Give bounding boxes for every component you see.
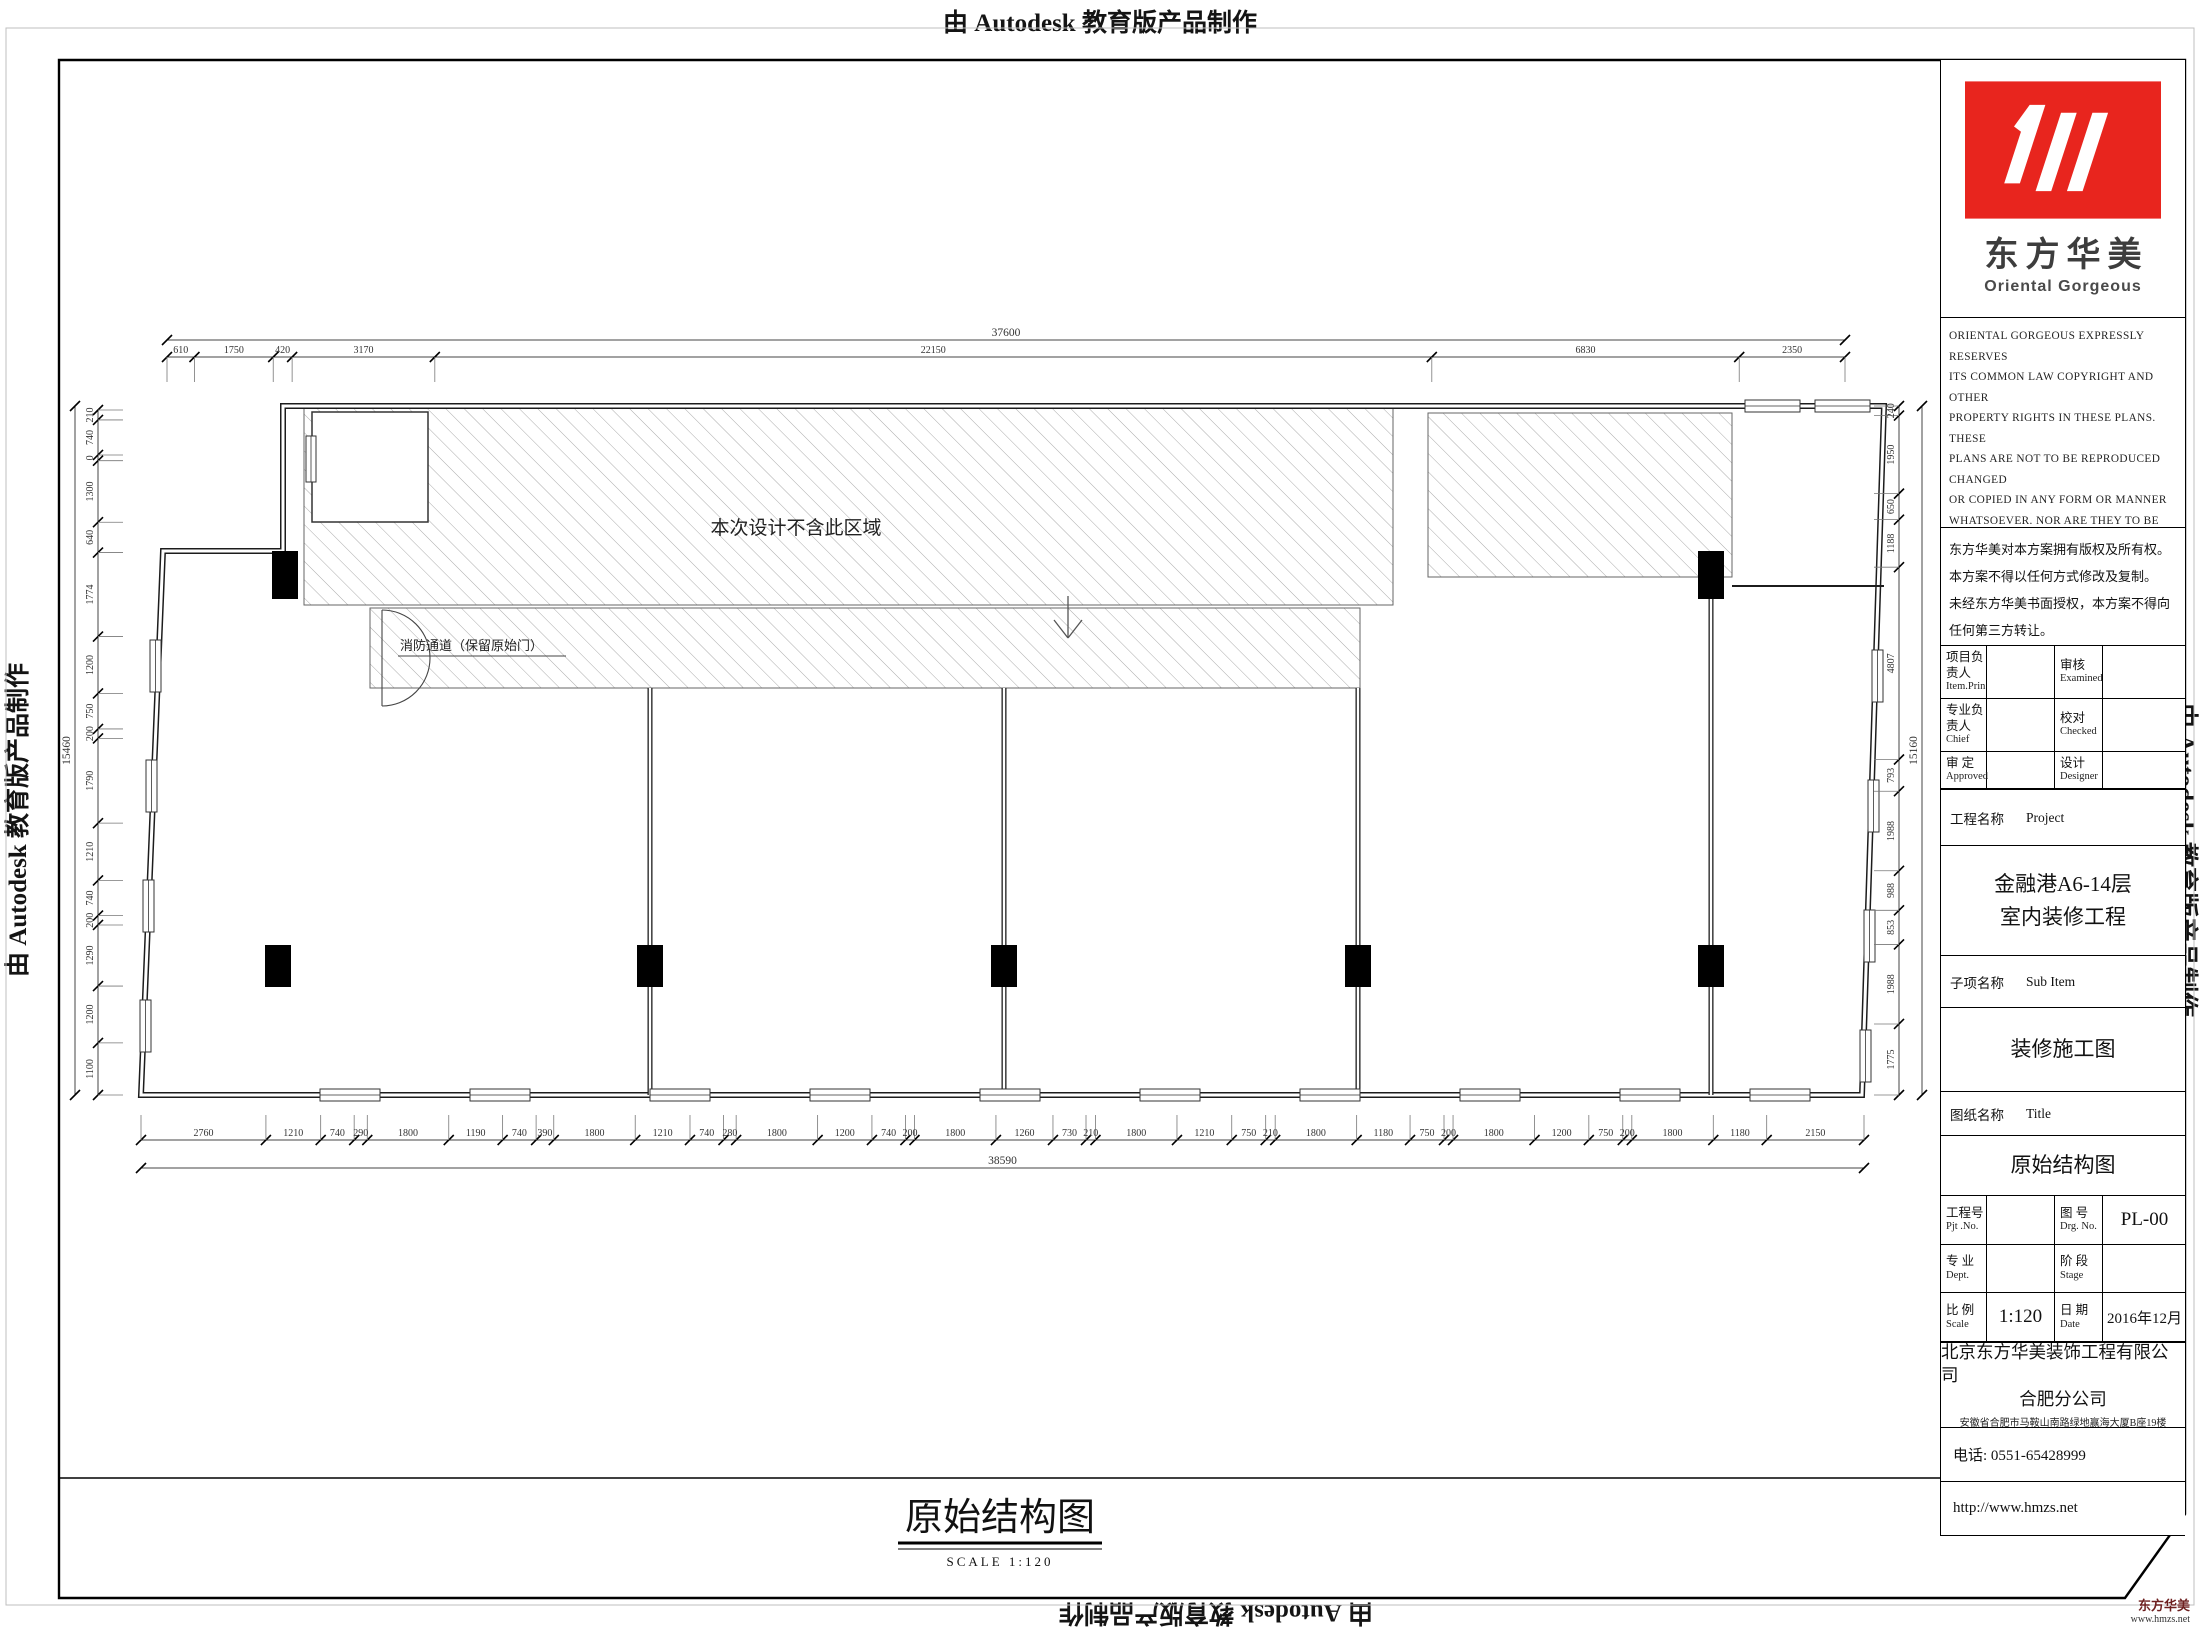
svg-text:1800: 1800 — [1306, 1128, 1326, 1139]
svg-text:1790: 1790 — [85, 771, 96, 791]
sheet-edge — [6, 28, 2194, 1605]
table-label-cell: 校对Checked — [2055, 699, 2103, 752]
table-label-cell: 专 业Dept. — [1941, 1245, 1987, 1294]
svg-text:1100: 1100 — [85, 1059, 96, 1079]
subitem-label-cn: 子项名称 — [1950, 972, 2004, 992]
svg-text:6830: 6830 — [1576, 345, 1596, 356]
svg-text:1800: 1800 — [398, 1128, 418, 1139]
svg-text:420: 420 — [275, 345, 290, 356]
table-label-cell: 审核Examined — [2055, 646, 2103, 699]
fire-exit-label: 消防通道（保留原始门） — [400, 638, 543, 653]
copyright-cn-line: 本方案不得以任何方式修改及复制。 — [1949, 563, 2181, 590]
logo-block: 东方华美 Oriental Gorgeous — [1941, 60, 2185, 318]
table-value-cell — [2103, 699, 2185, 752]
svg-text:200: 200 — [1620, 1128, 1635, 1139]
svg-text:740: 740 — [512, 1128, 527, 1139]
label-en: Examined — [2060, 673, 2100, 686]
svg-text:1210: 1210 — [85, 842, 96, 862]
label-cn: 审 定 — [1946, 756, 1984, 772]
sheet-value: 原始结构图 — [1941, 1136, 2185, 1196]
subitem-label-en: Sub Item — [2026, 974, 2075, 990]
copyright-cn-line: 未经东方华美书面授权，本方案不得向 — [1949, 590, 2181, 617]
svg-text:1190: 1190 — [466, 1128, 486, 1139]
label-cn: 工程号 — [1946, 1206, 1984, 1222]
table-value-cell — [1987, 699, 2055, 752]
copyright-en-line: WHATSOEVER. NOR ARE THEY TO BE ASSIGHED — [1949, 511, 2181, 529]
svg-text:3170: 3170 — [353, 345, 373, 356]
svg-text:0: 0 — [85, 455, 96, 460]
svg-text:750: 750 — [85, 704, 96, 719]
svg-text:200: 200 — [85, 913, 96, 928]
svg-text:290: 290 — [353, 1128, 368, 1139]
svg-text:1188: 1188 — [1886, 534, 1897, 554]
table-label-cell: 阶 段Stage — [2055, 1245, 2103, 1294]
svg-text:200: 200 — [1441, 1128, 1456, 1139]
label-en: Checked — [2060, 726, 2100, 739]
label-cn: 图 号 — [2060, 1206, 2100, 1222]
copyright-english: ORIENTAL GORGEOUS EXPRESSLY RESERVESITS … — [1941, 318, 2185, 528]
svg-text:1800: 1800 — [945, 1128, 965, 1139]
svg-text:1800: 1800 — [584, 1128, 604, 1139]
svg-text:1300: 1300 — [85, 481, 96, 501]
table-label-cell: 审 定Approved — [1941, 752, 1987, 789]
sheet-label-en: Title — [2026, 1106, 2051, 1122]
svg-text:2150: 2150 — [1805, 1128, 1825, 1139]
label-en: Pjt .No. — [1946, 1221, 1984, 1234]
copyright-en-line: PLANS ARE NOT TO BE REPRODUCED CHANGED — [1949, 449, 2181, 490]
svg-text:730: 730 — [1062, 1128, 1077, 1139]
label-cn: 项目负责人 — [1946, 650, 1984, 681]
svg-text:22150: 22150 — [921, 345, 946, 356]
svg-text:1950: 1950 — [1886, 445, 1897, 465]
table-label-cell: 日 期Date — [2055, 1293, 2103, 1342]
website-row: http://www.hmzs.net — [1941, 1482, 2185, 1536]
svg-text:1988: 1988 — [1886, 821, 1897, 841]
svg-text:1290: 1290 — [85, 946, 96, 966]
svg-text:1210: 1210 — [1194, 1128, 1214, 1139]
copyright-en-line: OR COPIED IN ANY FORM OR MANNER — [1949, 490, 2181, 511]
label-en: Approved — [1946, 771, 1984, 784]
room-cutout — [312, 412, 428, 522]
company-branch: 合肥分公司 — [2019, 1388, 2107, 1412]
footer-url: www.hmzs.net — [2085, 1614, 2190, 1626]
label-cn: 阶 段 — [2060, 1254, 2100, 1270]
project-name-line: 金融港A6-14层 — [1994, 868, 2132, 901]
svg-text:1988: 1988 — [1886, 974, 1897, 994]
table-label-cell: 项目负责人Item.Prin — [1941, 646, 1987, 699]
subitem-label-row: 子项名称 Sub Item — [1941, 956, 2185, 1008]
sheet-label-cn: 图纸名称 — [1950, 1104, 2004, 1124]
table-label-cell: 工程号Pjt .No. — [1941, 1196, 1987, 1245]
table-value-cell — [2103, 1245, 2185, 1294]
project-label-cn: 工程名称 — [1950, 808, 2004, 828]
sheet-value-text: 原始结构图 — [2011, 1149, 2116, 1182]
drawing-border — [59, 60, 2185, 1598]
copyright-cn-line: 任何第三方转让。 — [1949, 617, 2181, 644]
table-value-cell — [1987, 1196, 2055, 1245]
svg-text:200: 200 — [902, 1128, 917, 1139]
subitem-value: 装修施工图 — [1941, 1008, 2185, 1092]
project-name-line: 室内装修工程 — [2000, 901, 2126, 934]
table-value-cell — [1987, 752, 2055, 789]
table-label-cell: 设计Designer — [2055, 752, 2103, 789]
svg-text:15460: 15460 — [61, 736, 73, 765]
oriental-gorgeous-logo-mark — [1965, 81, 2161, 219]
table-value-cell — [1987, 646, 2055, 699]
label-en: Scale — [1946, 1319, 1984, 1332]
label-en: Date — [2060, 1319, 2100, 1332]
svg-text:1210: 1210 — [653, 1128, 673, 1139]
svg-text:1180: 1180 — [1730, 1128, 1750, 1139]
label-en: Stage — [2060, 1270, 2100, 1283]
svg-text:988: 988 — [1886, 883, 1897, 898]
project-label-en: Project — [2026, 810, 2064, 826]
table-label-cell: 专业负责人Chief — [1941, 699, 1987, 752]
floor-plan-canvas: 本次设计不含此区域 消防通道（保留原始门） 376006101750420317… — [0, 0, 2200, 1632]
drawing-sheet: 由 Autodesk 教育版产品制作 由 Autodesk 教育版产品制作 由 … — [0, 0, 2200, 1632]
title-block: 东方华美 Oriental Gorgeous ORIENTAL GORGEOUS… — [1940, 60, 2185, 1536]
svg-text:750: 750 — [1598, 1128, 1613, 1139]
table-value-cell: 1:120 — [1987, 1293, 2055, 1342]
svg-text:610: 610 — [173, 345, 188, 356]
label-cn: 专 业 — [1946, 1254, 1984, 1270]
label-cn: 审核 — [2060, 658, 2100, 674]
svg-text:750: 750 — [1241, 1128, 1256, 1139]
label-en: Designer — [2060, 771, 2100, 784]
copyright-cn-line: 东方华美对本方案拥有版权及所有权。 — [1949, 536, 2181, 563]
svg-text:1774: 1774 — [85, 585, 96, 605]
svg-text:750: 750 — [1420, 1128, 1435, 1139]
copyright-chinese: 东方华美对本方案拥有版权及所有权。本方案不得以任何方式修改及复制。未经东方华美书… — [1941, 528, 2185, 646]
svg-text:390: 390 — [537, 1128, 552, 1139]
table-value-cell: 2016年12月 — [2103, 1293, 2185, 1342]
svg-text:4807: 4807 — [1886, 653, 1897, 673]
meta-table: 工程号Pjt .No.图 号Drg. No.PL-00专 业Dept.阶 段St… — [1941, 1196, 2185, 1343]
logo-cn-text: 东方华美 — [1985, 227, 2149, 276]
svg-text:1200: 1200 — [835, 1128, 855, 1139]
svg-text:650: 650 — [1886, 499, 1897, 514]
svg-text:1800: 1800 — [767, 1128, 787, 1139]
label-en: Drg. No. — [2060, 1221, 2100, 1234]
svg-text:1775: 1775 — [1886, 1049, 1897, 1069]
svg-text:210: 210 — [1083, 1128, 1098, 1139]
label-cn: 专业负责人 — [1946, 703, 1984, 734]
svg-text:740: 740 — [881, 1128, 896, 1139]
svg-text:640: 640 — [85, 530, 96, 545]
phone-row: 电话: 0551-65428999 — [1941, 1428, 2185, 1482]
table-value-cell: PL-00 — [2103, 1196, 2185, 1245]
svg-text:740: 740 — [699, 1128, 714, 1139]
copyright-en-line: ORIENTAL GORGEOUS EXPRESSLY RESERVES — [1949, 326, 2181, 367]
table-value-cell — [1987, 1245, 2055, 1294]
label-cn: 比 例 — [1946, 1303, 1984, 1319]
svg-text:1800: 1800 — [1484, 1128, 1504, 1139]
table-label-cell: 比 例Scale — [1941, 1293, 1987, 1342]
project-label-row: 工程名称 Project — [1941, 790, 2185, 846]
company-block: 北京东方华美装饰工程有限公司 合肥分公司 安徽省合肥市马鞍山南路绿地赢海大厦B座… — [1941, 1343, 2185, 1428]
svg-text:280: 280 — [722, 1128, 737, 1139]
svg-text:1210: 1210 — [283, 1128, 303, 1139]
svg-text:740: 740 — [85, 890, 96, 905]
svg-text:1200: 1200 — [85, 1004, 96, 1024]
logo-en-text: Oriental Gorgeous — [1984, 278, 2141, 296]
project-name: 金融港A6-14层室内装修工程 — [1941, 846, 2185, 956]
svg-text:1180: 1180 — [1374, 1128, 1394, 1139]
svg-text:38590: 38590 — [988, 1155, 1017, 1167]
svg-text:740: 740 — [85, 430, 96, 445]
svg-text:2760: 2760 — [193, 1128, 213, 1139]
label-cn: 设计 — [2060, 756, 2100, 772]
svg-text:1200: 1200 — [85, 655, 96, 675]
svg-text:740: 740 — [330, 1128, 345, 1139]
sheet-scale: SCALE 1:120 — [946, 1554, 1053, 1569]
svg-text:1800: 1800 — [1663, 1128, 1683, 1139]
copyright-en-line: PROPERTY RIGHTS IN THESE PLANS. THESE — [1949, 408, 2181, 449]
subitem-value-text: 装修施工图 — [2011, 1033, 2116, 1066]
svg-text:853: 853 — [1886, 920, 1897, 935]
svg-text:1750: 1750 — [224, 345, 244, 356]
svg-text:1260: 1260 — [1014, 1128, 1034, 1139]
label-en: Chief — [1946, 734, 1984, 747]
website-url: http://www.hmzs.net — [1953, 1500, 2078, 1517]
label-en: Item.Prin — [1946, 681, 1984, 694]
svg-text:15160: 15160 — [1908, 736, 1920, 765]
svg-text:210: 210 — [85, 407, 96, 422]
phone-number: 电话: 0551-65428999 — [1953, 1444, 2086, 1465]
svg-text:210: 210 — [1263, 1128, 1278, 1139]
company-address: 安徽省合肥市马鞍山南路绿地赢海大厦B座19楼 — [1960, 1414, 2167, 1428]
table-label-cell: 图 号Drg. No. — [2055, 1196, 2103, 1245]
table-value-cell — [2103, 752, 2185, 789]
svg-text:200: 200 — [85, 726, 96, 741]
label-cn: 校对 — [2060, 711, 2100, 727]
label-cn: 日 期 — [2060, 1303, 2100, 1319]
sheet-label-row: 图纸名称 Title — [1941, 1092, 2185, 1136]
footer-brand: 东方华美 — [2085, 1598, 2190, 1614]
label-en: Dept. — [1946, 1270, 1984, 1283]
sheet-title: 原始结构图 — [905, 1497, 1095, 1539]
excluded-area-label: 本次设计不含此区域 — [710, 517, 881, 539]
company-name: 北京东方华美装饰工程有限公司 — [1941, 1343, 2185, 1388]
svg-text:793: 793 — [1886, 768, 1897, 783]
table-value-cell — [2103, 646, 2185, 699]
svg-text:1200: 1200 — [1552, 1128, 1572, 1139]
svg-text:2350: 2350 — [1782, 345, 1802, 356]
copyright-en-line: ITS COMMON LAW COPYRIGHT AND OTHER — [1949, 367, 2181, 408]
personnel-table: 项目负责人Item.Prin审核Examined专业负责人Chief校对Chec… — [1941, 646, 2185, 790]
corner-footer: 东方华美 www.hmzs.net — [2085, 1598, 2190, 1626]
svg-text:240: 240 — [1886, 403, 1897, 418]
svg-text:1800: 1800 — [1126, 1128, 1146, 1139]
svg-text:37600: 37600 — [992, 327, 1021, 339]
